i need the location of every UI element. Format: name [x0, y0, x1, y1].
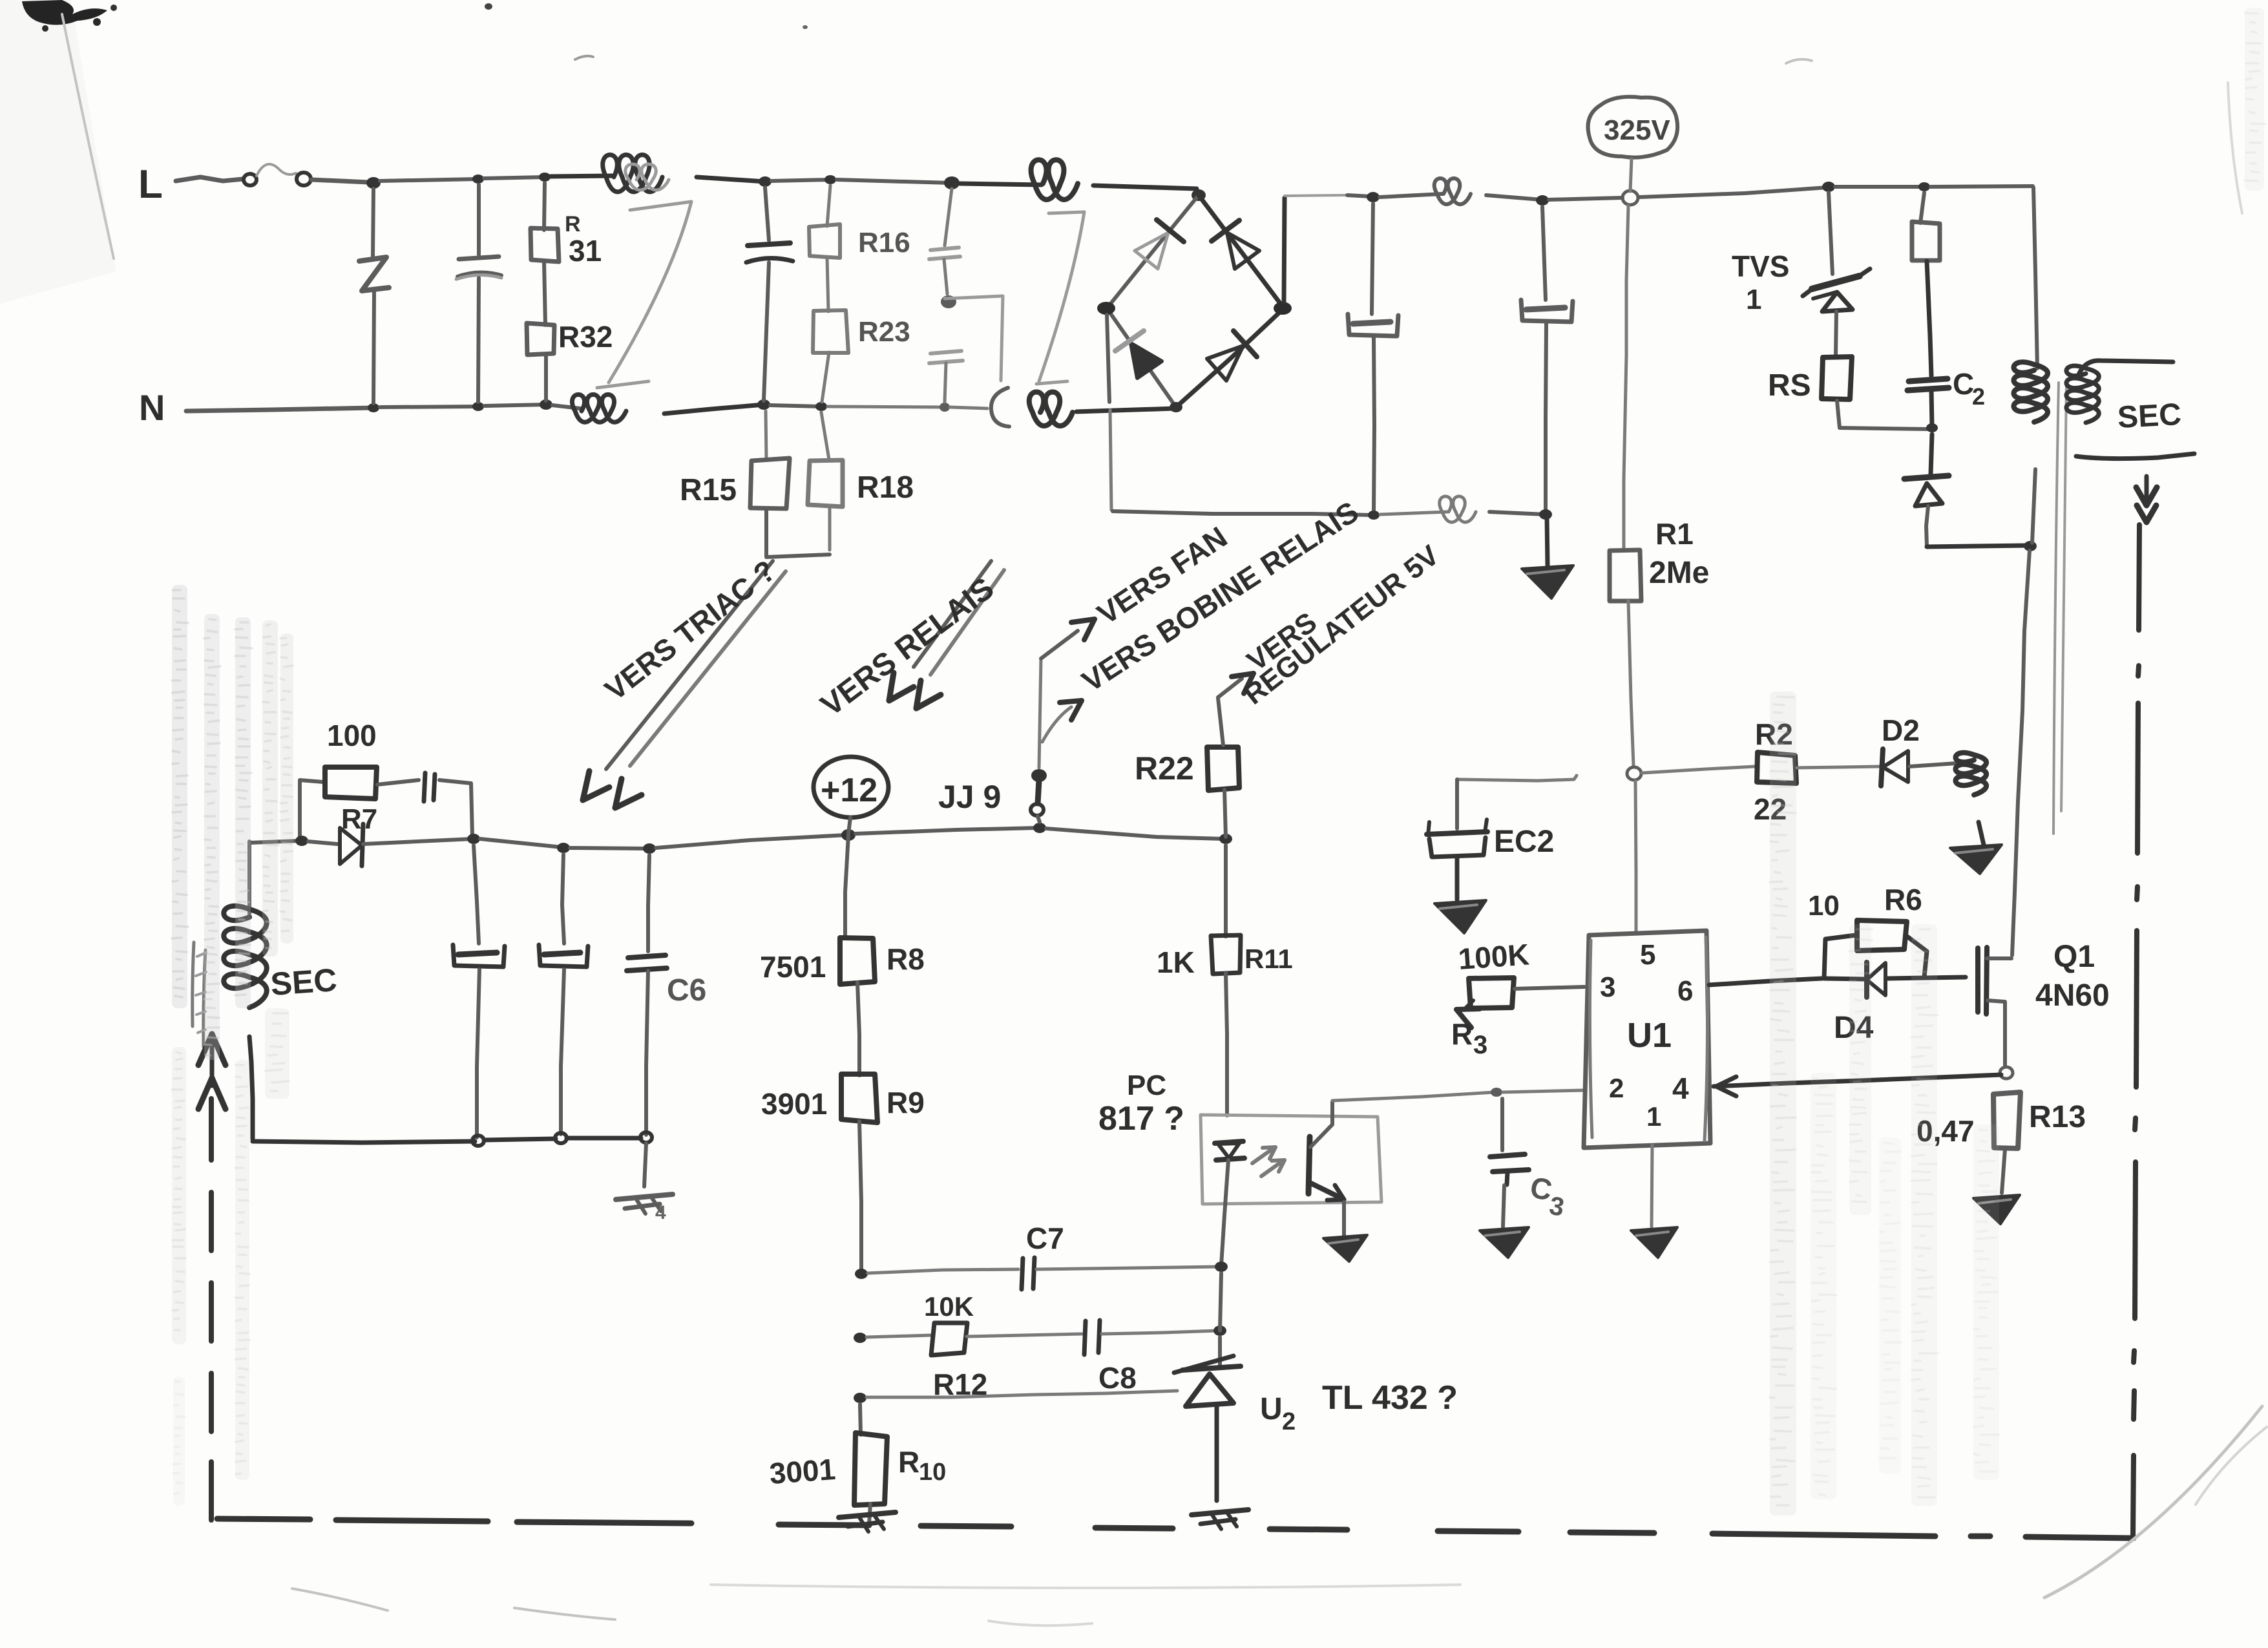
svg-text:C: C	[1953, 367, 1974, 401]
svg-text:100: 100	[327, 719, 377, 752]
svg-text:R: R	[898, 1445, 919, 1479]
svg-text:2Me: 2Me	[1649, 556, 1709, 590]
svg-text:817 ?: 817 ?	[1098, 1100, 1184, 1137]
svg-text:10K: 10K	[924, 1291, 974, 1322]
svg-text:4: 4	[1672, 1072, 1689, 1105]
svg-text:5: 5	[1640, 939, 1655, 971]
svg-text:1: 1	[1646, 1101, 1661, 1132]
svg-text:3001: 3001	[768, 1452, 837, 1490]
svg-text:N: N	[139, 387, 165, 428]
svg-text:Q1: Q1	[2053, 940, 2095, 974]
svg-text:L: L	[138, 162, 163, 207]
svg-text:325V: 325V	[1604, 114, 1670, 146]
svg-text:10: 10	[1808, 890, 1840, 922]
svg-text:+12: +12	[821, 772, 877, 809]
svg-text:C8: C8	[1098, 1361, 1137, 1395]
svg-text:R6: R6	[1884, 883, 1922, 916]
svg-text:PC: PC	[1127, 1070, 1166, 1101]
svg-text:1: 1	[1746, 284, 1761, 315]
svg-text:R: R	[1451, 1017, 1473, 1051]
svg-text:2: 2	[1282, 1408, 1296, 1435]
svg-text:U: U	[1260, 1392, 1283, 1426]
svg-text:4: 4	[655, 1202, 666, 1223]
svg-text:R7: R7	[341, 803, 377, 835]
svg-text:2: 2	[1972, 383, 1985, 410]
svg-text:7501: 7501	[760, 950, 826, 984]
svg-text:C6: C6	[667, 973, 706, 1008]
svg-text:3: 3	[1473, 1031, 1487, 1059]
svg-text:R9: R9	[887, 1086, 925, 1119]
svg-text:C7: C7	[1026, 1221, 1064, 1255]
svg-text:U1: U1	[1627, 1016, 1672, 1055]
svg-text:31: 31	[569, 234, 602, 268]
svg-text:3901: 3901	[761, 1087, 827, 1121]
svg-text:JJ 9: JJ 9	[938, 779, 1001, 815]
svg-text:100K: 100K	[1457, 937, 1530, 976]
svg-text:R8: R8	[887, 942, 925, 976]
svg-text:TL 432 ?: TL 432 ?	[1322, 1379, 1458, 1417]
svg-text:R23: R23	[858, 316, 910, 348]
svg-text:TVS: TVS	[1732, 249, 1789, 283]
svg-text:R32: R32	[558, 320, 613, 354]
svg-text:3: 3	[1600, 971, 1615, 1003]
svg-text:R13: R13	[2029, 1100, 2086, 1134]
svg-text:R: R	[565, 212, 581, 237]
svg-text:D2: D2	[1882, 713, 1920, 747]
svg-text:SEC: SEC	[2117, 397, 2182, 435]
svg-text:R16: R16	[858, 227, 910, 259]
svg-text:R15: R15	[680, 473, 737, 507]
svg-text:RS: RS	[1768, 368, 1811, 403]
svg-text:EC2: EC2	[1494, 825, 1554, 859]
svg-text:2: 2	[1609, 1073, 1624, 1103]
svg-text:4N60: 4N60	[2035, 978, 2110, 1013]
svg-text:6: 6	[1677, 975, 1693, 1007]
svg-text:R1: R1	[1655, 517, 1694, 551]
svg-text:10: 10	[919, 1459, 946, 1486]
svg-text:R22: R22	[1135, 750, 1194, 787]
svg-text:R18: R18	[857, 470, 914, 505]
svg-text:1K: 1K	[1157, 945, 1195, 979]
svg-text:R11: R11	[1244, 944, 1293, 974]
svg-text:SEC: SEC	[269, 962, 338, 1002]
